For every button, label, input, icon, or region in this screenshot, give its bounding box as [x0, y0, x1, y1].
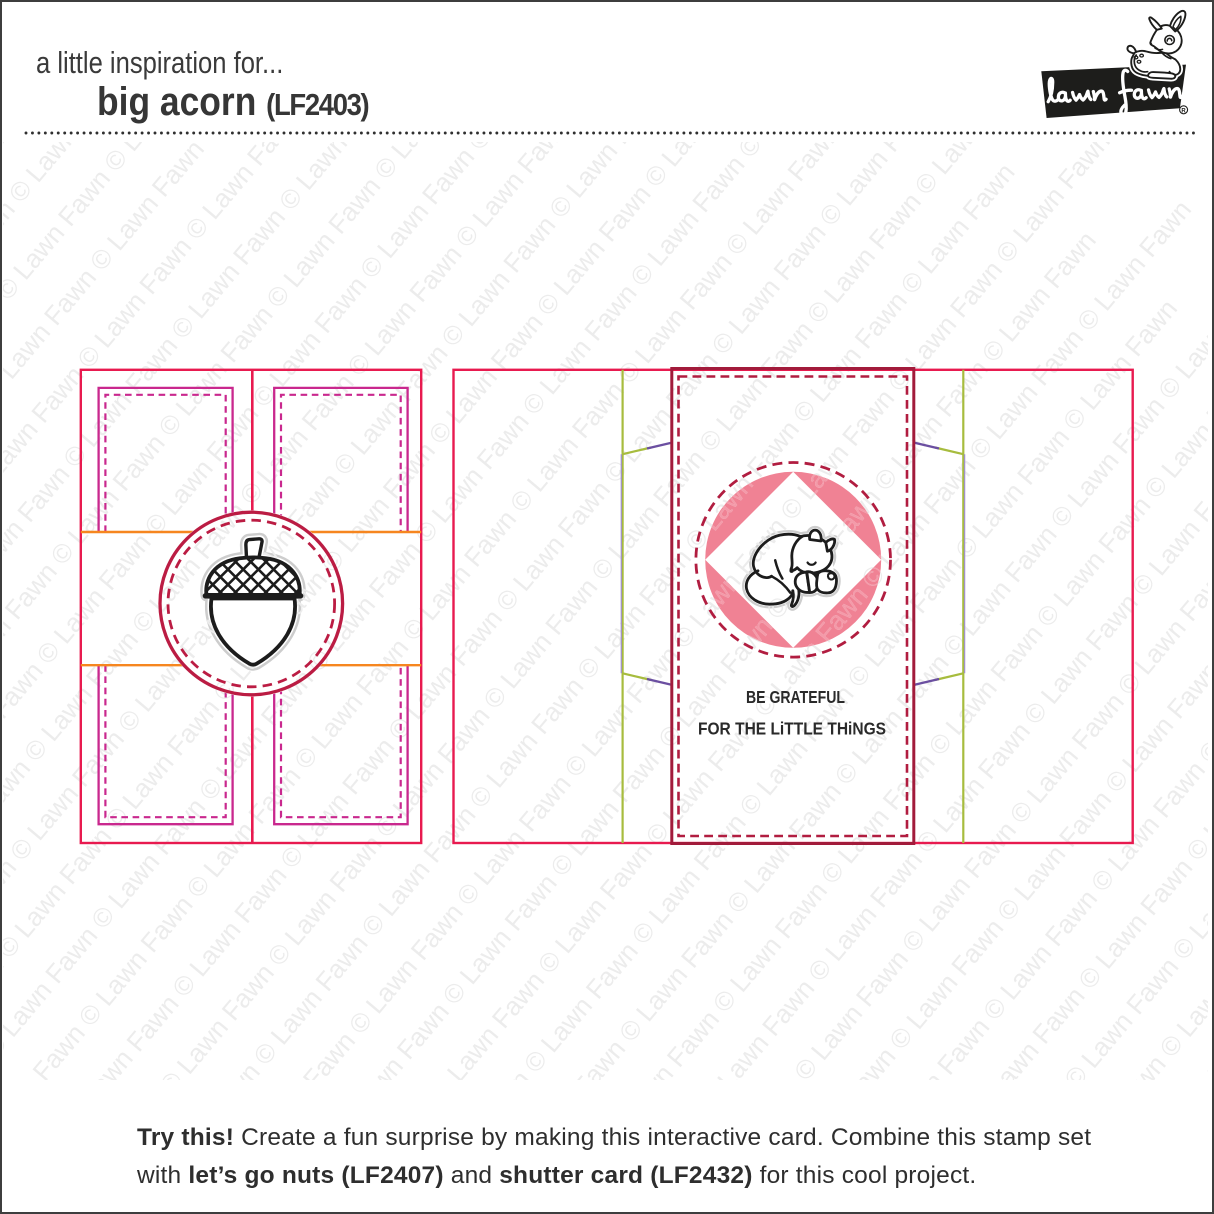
svg-text:FOR THE LiTTLE THiNGS: FOR THE LiTTLE THiNGS [698, 719, 886, 739]
svg-text:BE GRATEFUL: BE GRATEFUL [746, 687, 845, 707]
svg-text:© Lawn Fawn © Lawn Fawn © Lawn: © Lawn Fawn © Lawn Fawn © Lawn Fawn © La… [0, 498, 1214, 1214]
svg-text:© Lawn Fawn © Lawn Fawn © Lawn: © Lawn Fawn © Lawn Fawn © Lawn Fawn © La… [0, 498, 1214, 1214]
svg-text:R: R [1181, 108, 1186, 114]
